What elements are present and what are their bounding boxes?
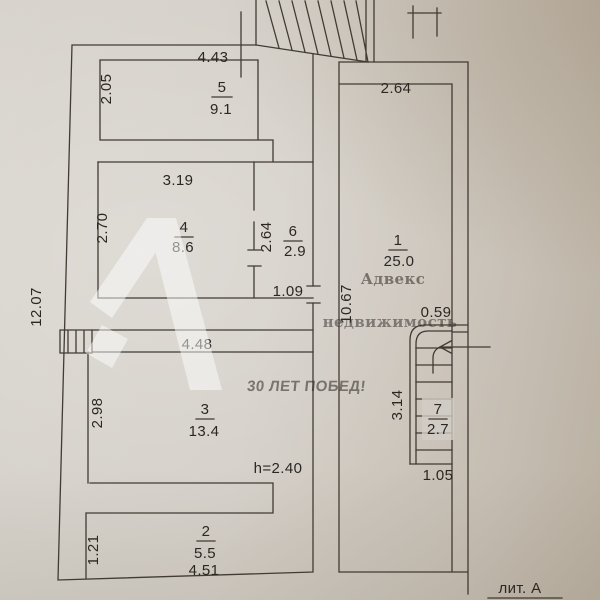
- room5-number: 5: [218, 79, 227, 96]
- stair-hatch-top: [266, 0, 374, 62]
- room6-area: 2.9: [284, 243, 306, 260]
- stair-rails: [410, 325, 452, 464]
- litera-label: лит. А: [498, 580, 541, 597]
- dim-total-height: 12.07: [28, 287, 45, 327]
- room7-area: 2.7: [427, 421, 449, 438]
- room3-area: 13.4: [189, 423, 220, 440]
- dim-room2-height: 1.21: [85, 535, 102, 566]
- door-ticks-right-wall: [307, 286, 320, 303]
- room3-room2-walls: [86, 352, 273, 578]
- dim-room3-height: 2.98: [89, 398, 106, 429]
- watermark-slogan: 30 ЛЕТ ПОБЕД!: [246, 378, 367, 395]
- room1-area: 25.0: [384, 253, 415, 270]
- floorplan-photo: 12.07 4.43 2.05 5 9.1 3.19 2.70 4 8.6 2.…: [0, 0, 600, 600]
- dim-room5-height: 2.05: [98, 74, 115, 105]
- room7-number: 7: [434, 401, 443, 418]
- watermark-brand-name: Адвекс: [361, 270, 426, 288]
- dim-room2-width: 4.51: [189, 562, 220, 579]
- room6-number: 6: [289, 223, 298, 240]
- plan-lines-overlay: [175, 97, 562, 598]
- room2-number: 2: [202, 523, 211, 540]
- room2-area: 5.5: [194, 545, 216, 562]
- room1-number: 1: [394, 232, 403, 249]
- top-dimension-ticks: [408, 6, 441, 38]
- dim-room1-width: 2.64: [381, 80, 412, 97]
- floorplan-drawing: 12.07 4.43 2.05 5 9.1 3.19 2.70 4 8.6 2.…: [0, 0, 600, 600]
- dim-stairs-height: 3.14: [389, 390, 406, 421]
- ceiling-height-note: h=2.40: [254, 460, 303, 477]
- dim-room4-width: 3.19: [163, 172, 194, 189]
- watermark-brand-sub: недвижимость: [323, 313, 458, 331]
- room4-number: 4: [180, 219, 189, 236]
- dim-room6-width: 1.09: [273, 283, 304, 300]
- plan-labels: 12.07 4.43 2.05 5 9.1 3.19 2.70 4 8.6 2.…: [28, 49, 542, 597]
- stair-direction-arrow: [433, 341, 490, 373]
- dim-room4-height: 2.70: [94, 213, 111, 244]
- dim-stairs-width: 1.05: [423, 467, 454, 484]
- top-door-jambs: [241, 0, 256, 77]
- room5-area: 9.1: [210, 101, 232, 118]
- dim-room6-height: 2.64: [258, 222, 275, 253]
- room3-number: 3: [201, 401, 210, 418]
- room5-walls: [98, 60, 313, 162]
- dim-room5-width: 4.43: [198, 49, 229, 66]
